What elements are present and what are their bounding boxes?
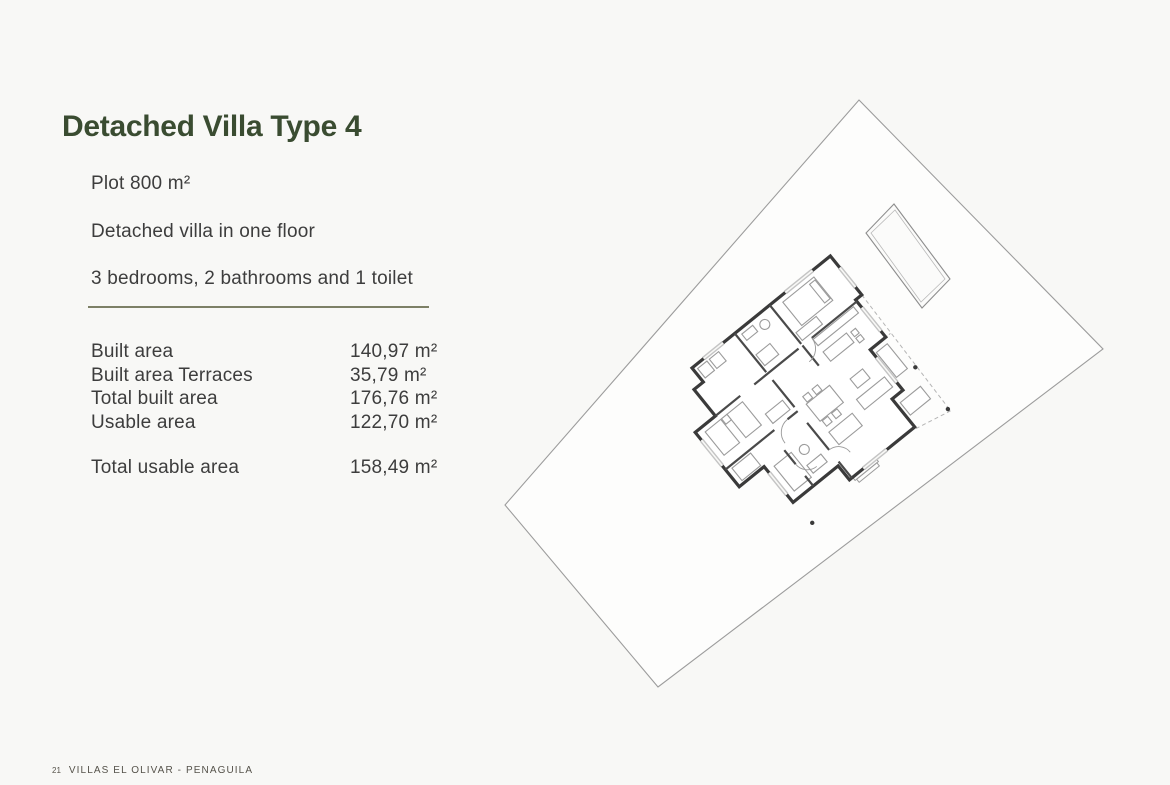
- spec-row-total-usable-area: Total usable area 158,49 m²: [91, 457, 511, 479]
- spec-label: Total usable area: [91, 457, 350, 479]
- spec-row-total-built-area: Total built area 176,76 m²: [91, 387, 511, 411]
- footer: 21 VILLAS EL OLIVAR - PENAGUILA: [52, 765, 253, 776]
- brochure-page: Detached Villa Type 4 Plot 800 m² Detach…: [0, 0, 1170, 785]
- villa-floor-area: [662, 256, 947, 536]
- plot-boundary: [505, 100, 1103, 687]
- spec-value: 176,76 m²: [350, 387, 511, 411]
- interior-walls: [662, 261, 941, 536]
- divider-line: [88, 306, 429, 308]
- spec-row-built-area: Built area 140,97 m²: [91, 340, 511, 364]
- exterior-walls: [662, 256, 947, 536]
- spec-table: Built area 140,97 m² Built area Terraces…: [91, 340, 511, 434]
- spec-label: Usable area: [91, 411, 350, 435]
- windows: [662, 256, 947, 536]
- intro-plot: Plot 800 m²: [91, 173, 190, 195]
- spec-row-usable-area: Usable area 122,70 m²: [91, 411, 511, 435]
- spec-value: 35,79 m²: [350, 364, 511, 388]
- project-name: VILLAS EL OLIVAR - PENAGUILA: [69, 765, 253, 776]
- spec-label: Built area: [91, 340, 350, 364]
- spec-row-built-area-terraces: Built area Terraces 35,79 m²: [91, 364, 511, 388]
- spec-label: Built area Terraces: [91, 364, 350, 388]
- furniture: [670, 266, 932, 523]
- spec-value: 140,97 m²: [350, 340, 511, 364]
- swimming-pool: [866, 204, 950, 308]
- entrance-steps: [853, 458, 881, 483]
- page-number: 21: [52, 766, 61, 775]
- page-title: Detached Villa Type 4: [62, 110, 361, 144]
- spec-value: 122,70 m²: [350, 411, 511, 435]
- intro-floors: Detached villa in one floor: [91, 221, 315, 243]
- terrace: [829, 295, 954, 435]
- terrace-columns: [774, 364, 954, 526]
- door-swings: [740, 338, 883, 484]
- villa-floor-plan: [662, 256, 955, 546]
- intro-rooms: 3 bedrooms, 2 bathrooms and 1 toilet: [91, 268, 413, 290]
- spec-label: Total built area: [91, 387, 350, 411]
- spec-value: 158,49 m²: [350, 457, 511, 479]
